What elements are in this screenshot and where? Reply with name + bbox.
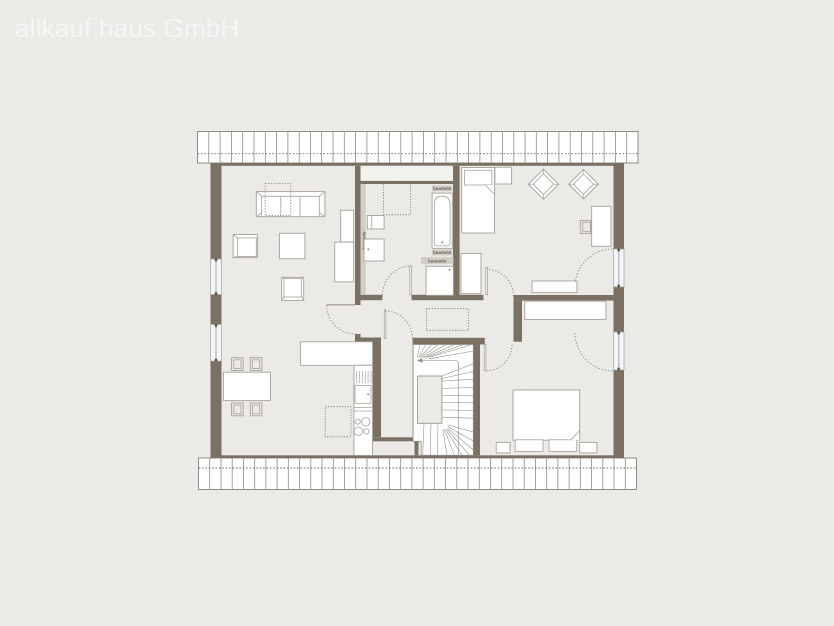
svg-text:bauseits: bauseits: [433, 186, 451, 192]
svg-text:bauseits: bauseits: [433, 250, 451, 256]
svg-text:bauseits: bauseits: [428, 259, 446, 265]
